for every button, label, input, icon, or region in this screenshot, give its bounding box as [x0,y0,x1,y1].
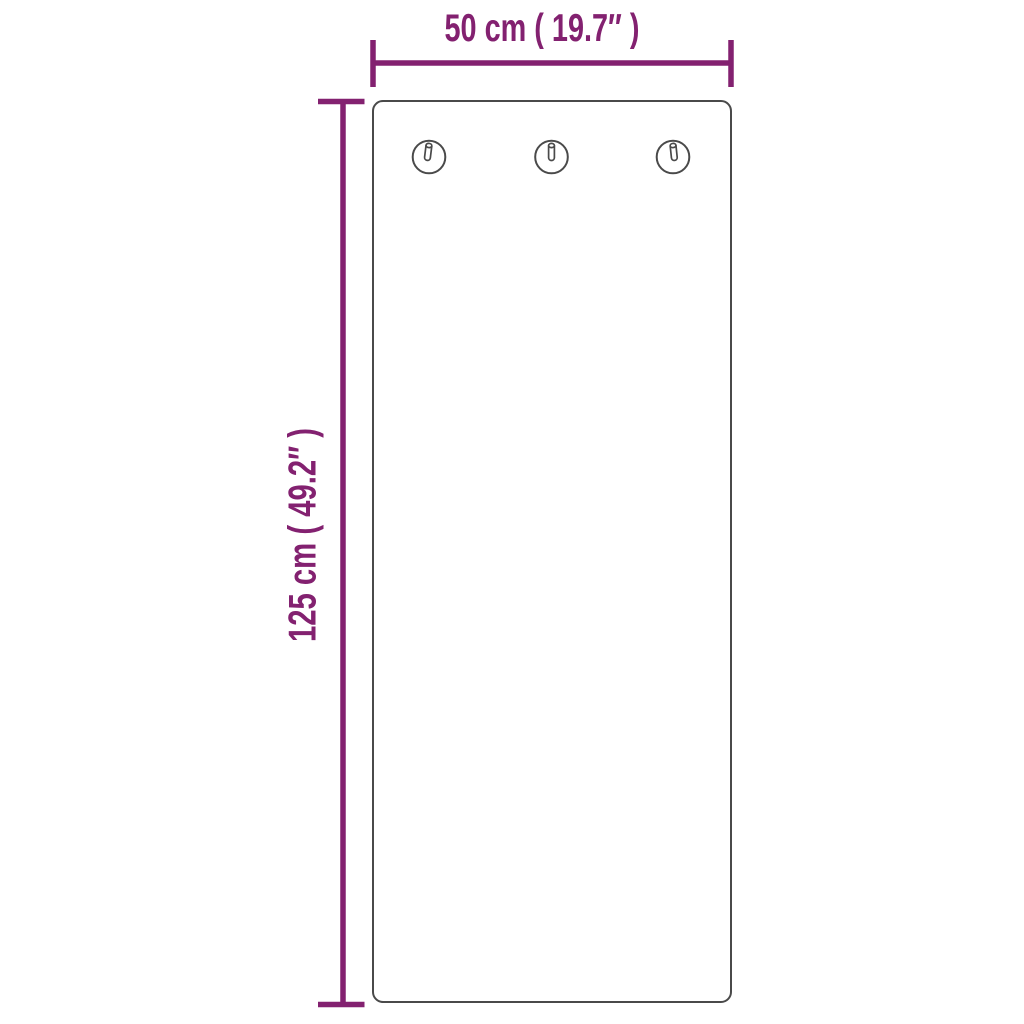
svg-text:50 cm ( 19.7″ ): 50 cm ( 19.7″ ) [445,7,640,50]
svg-text:125 cm ( 49.2″ ): 125 cm ( 49.2″ ) [282,428,325,642]
